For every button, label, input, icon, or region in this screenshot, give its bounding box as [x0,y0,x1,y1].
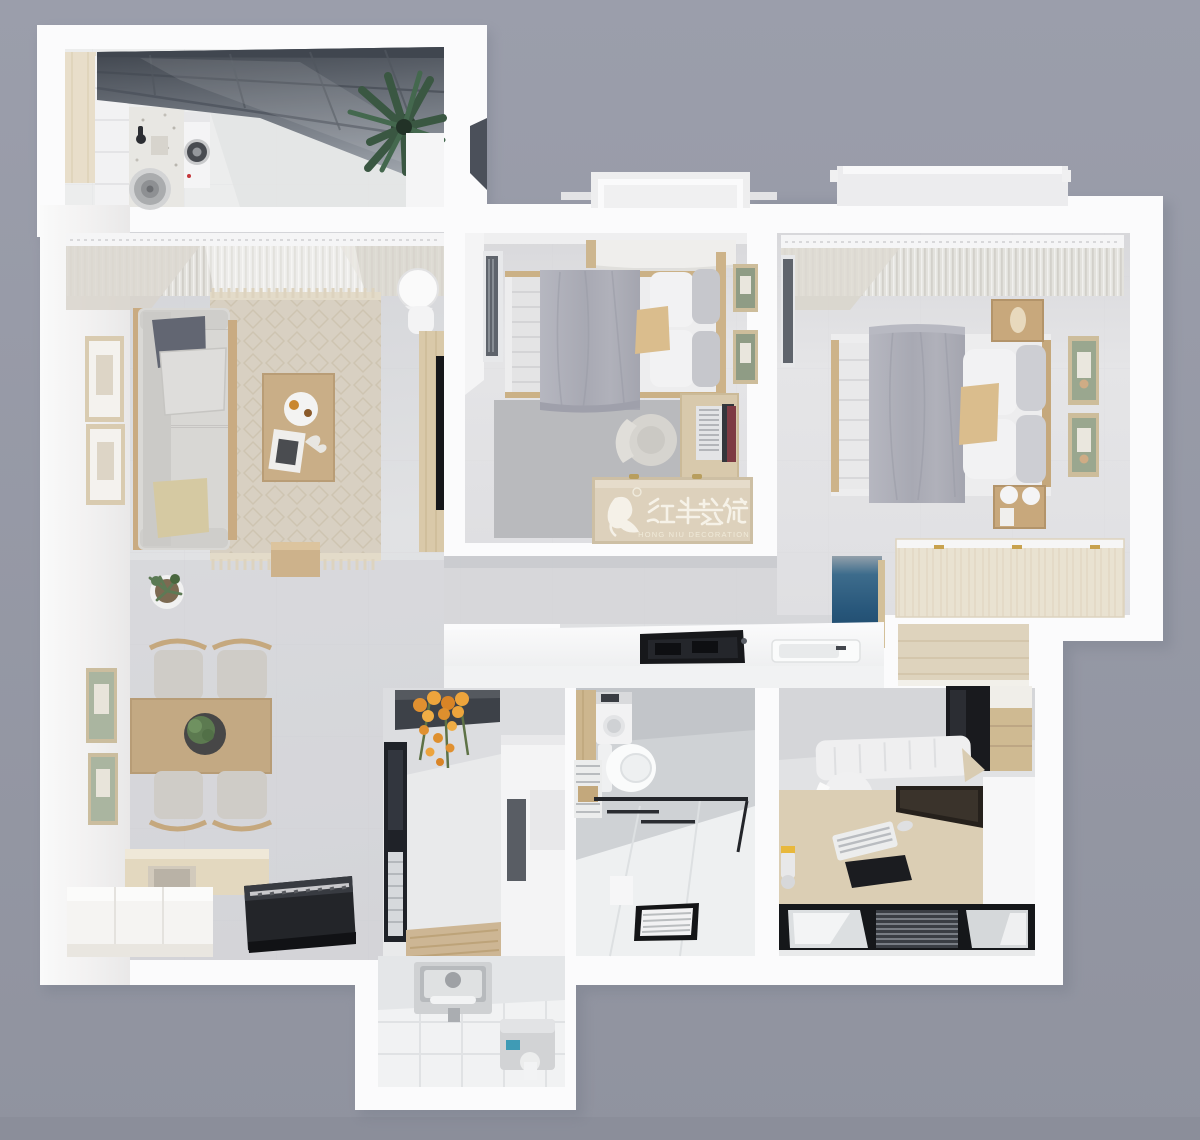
svg-text:HONG NIU DECORATION: HONG NIU DECORATION [638,530,750,539]
